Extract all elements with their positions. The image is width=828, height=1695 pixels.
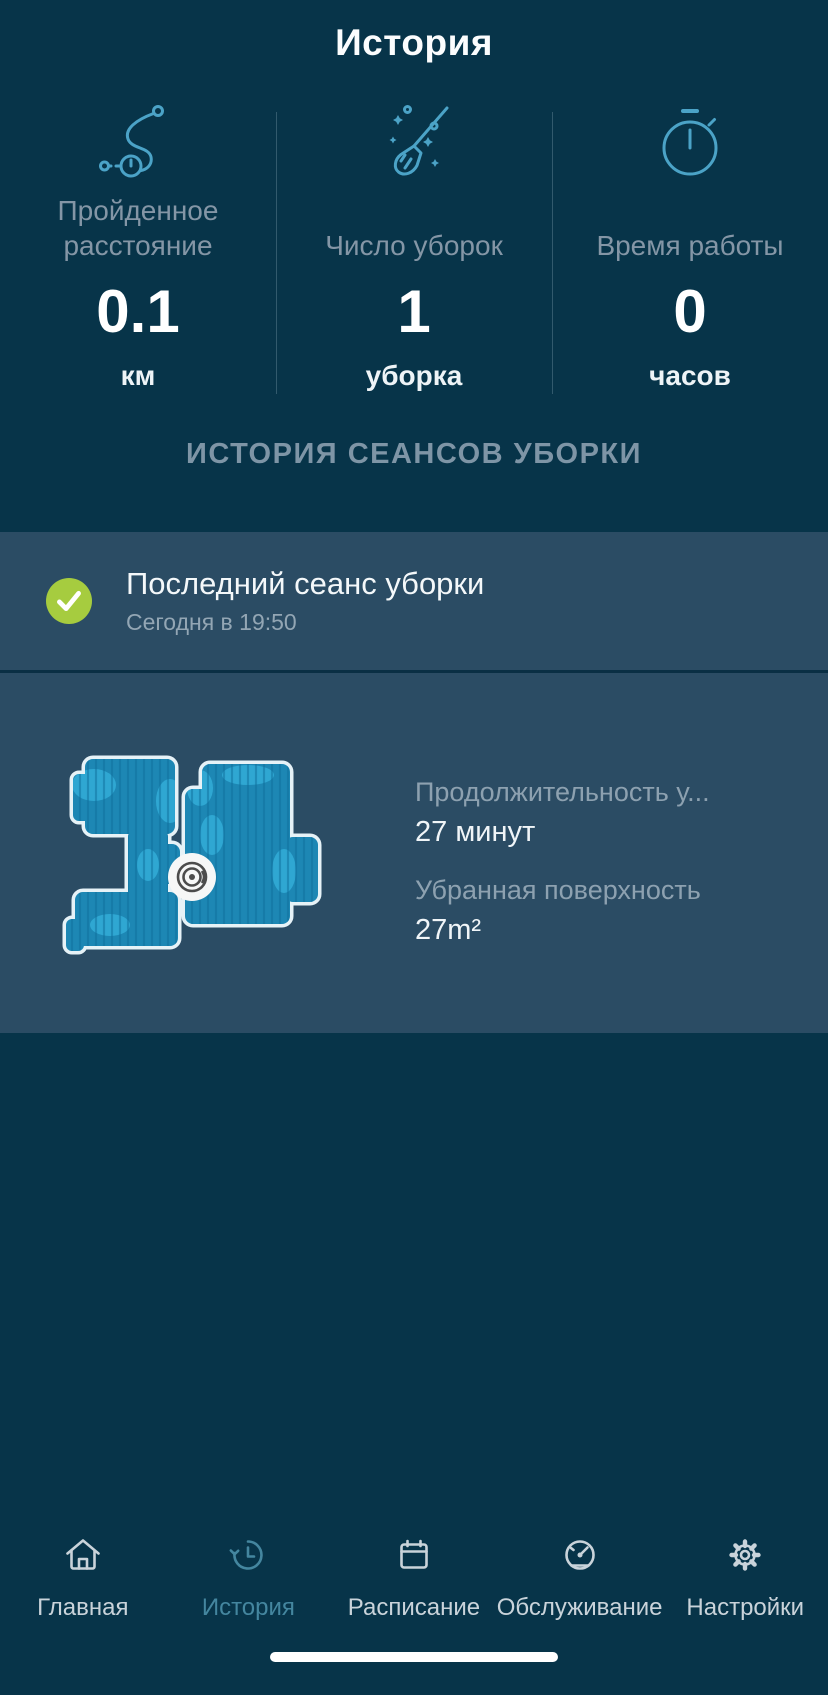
calendar-icon [391, 1532, 437, 1578]
history-icon [225, 1532, 271, 1578]
section-title: ИСТОРИЯ СЕАНСОВ УБОРКИ [0, 438, 828, 471]
tab-history[interactable]: История [166, 1532, 332, 1622]
broom-icon [371, 92, 457, 191]
tab-maintenance[interactable]: Обслуживание [497, 1532, 663, 1622]
tab-label: Главная [37, 1594, 128, 1622]
tab-home[interactable]: Главная [0, 1532, 166, 1622]
session-subtitle: Сегодня в 19:50 [126, 609, 484, 636]
tab-label: Настройки [686, 1594, 804, 1622]
page-title: История [0, 22, 828, 64]
tab-bar: Главная История Расписание [0, 1500, 828, 1640]
stat-label: Пройденное расстояние [23, 191, 253, 263]
gauge-icon [557, 1532, 603, 1578]
stat-unit: уборка [366, 360, 463, 392]
home-icon [60, 1532, 106, 1578]
tab-settings[interactable]: Настройки [662, 1532, 828, 1622]
cleaning-map [52, 743, 324, 955]
stat-unit: км [121, 360, 156, 392]
session-text: Последний сеанс уборки Сегодня в 19:50 [126, 566, 484, 636]
robot-marker-icon [168, 853, 216, 901]
session-title: Последний сеанс уборки [126, 566, 484, 602]
tab-label: Расписание [348, 1594, 480, 1622]
tab-label: История [202, 1594, 295, 1622]
stat-worktime: Время работы 0 часов [552, 92, 828, 392]
stat-label: Число уборок [325, 191, 503, 263]
tab-schedule[interactable]: Расписание [331, 1532, 497, 1622]
route-icon [95, 92, 181, 191]
check-icon [46, 578, 92, 624]
stat-label: Время работы [596, 191, 783, 263]
stats-summary: Пройденное расстояние 0.1 км Число уборо… [0, 92, 828, 392]
area-label: Убранная поверхность [415, 875, 710, 906]
stats-divider [276, 112, 277, 394]
session-detail-card[interactable]: Продолжительность у... 27 минут Убранная… [0, 673, 828, 1033]
last-session-row[interactable]: Последний сеанс уборки Сегодня в 19:50 [0, 532, 828, 670]
stat-value: 0 [673, 277, 706, 346]
stat-unit: часов [649, 360, 731, 392]
tab-label: Обслуживание [497, 1594, 663, 1622]
session-detail-text: Продолжительность у... 27 минут Убранная… [415, 777, 710, 947]
duration-value: 27 минут [415, 816, 710, 849]
stat-value: 0.1 [96, 277, 179, 346]
stopwatch-icon [647, 92, 733, 191]
duration-label: Продолжительность у... [415, 777, 710, 808]
stats-divider [552, 112, 553, 394]
stat-distance: Пройденное расстояние 0.1 км [0, 92, 276, 392]
gear-icon [722, 1532, 768, 1578]
home-indicator[interactable] [270, 1652, 558, 1662]
area-value: 27m² [415, 914, 710, 947]
stat-cleanings: Число уборок 1 уборка [276, 92, 552, 392]
stat-value: 1 [397, 277, 430, 346]
